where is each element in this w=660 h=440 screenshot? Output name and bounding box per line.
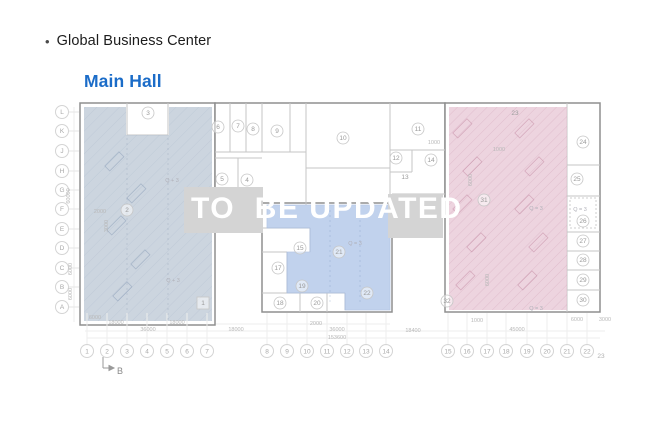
row-axis-label: J xyxy=(60,148,63,155)
col-axis-label: 11 xyxy=(324,348,331,355)
room-number: 18 xyxy=(276,300,284,307)
dimension-label: 6000 xyxy=(89,315,101,321)
room-number: 23 xyxy=(511,110,519,117)
dimension-label: 45000 xyxy=(509,327,524,333)
dimension-label: 1000 xyxy=(428,140,440,146)
col-axis-label: 13 xyxy=(362,348,370,355)
room-number: 10 xyxy=(339,135,347,142)
watermark-text: TO BE UPDATED xyxy=(191,192,463,226)
col-axis-label: 10 xyxy=(303,348,311,355)
col-axis-label: 9 xyxy=(285,348,289,355)
room-number: 4 xyxy=(245,177,249,184)
room-number: 22 xyxy=(363,290,371,297)
room-number: 12 xyxy=(392,155,400,162)
zone-right-hatch xyxy=(449,107,567,310)
dimension-label: 36000 xyxy=(140,327,155,333)
dimension-label: 18400 xyxy=(405,328,420,334)
room-number: 6 xyxy=(216,124,220,131)
room-number: 32 xyxy=(443,298,451,305)
col-axis-label: 4 xyxy=(145,348,149,355)
annotation-label: Q = 3 xyxy=(529,206,543,212)
room-number: 3 xyxy=(146,110,150,117)
section-marker xyxy=(103,357,114,371)
col-axis-label: 21 xyxy=(563,348,571,355)
room-number: 7 xyxy=(236,123,240,130)
annotation-label: Q + 3 xyxy=(166,278,180,284)
room-number: 24 xyxy=(579,139,587,146)
dimension-label: 1000 xyxy=(471,318,483,324)
room-number: 25 xyxy=(573,176,581,183)
dimension-label: 18000 xyxy=(228,327,243,333)
col-axis-label: 1 xyxy=(85,348,89,355)
room-number: 15 xyxy=(296,245,304,252)
col-axis-label: 20 xyxy=(543,348,551,355)
col-axis-label: 5 xyxy=(165,348,169,355)
room-number: 28 xyxy=(579,257,587,264)
row-axis-label: D xyxy=(60,245,65,252)
room-number: 30 xyxy=(579,297,587,304)
section-marker-label: B xyxy=(117,366,123,376)
room-number: 11 xyxy=(415,126,422,133)
room-number: 9 xyxy=(275,128,279,135)
annotation-label: Q = 3 xyxy=(573,207,587,213)
annotation-label: Q + 3 xyxy=(165,178,179,184)
col-axis-label: 14 xyxy=(382,348,390,355)
dimension-label: 6000 xyxy=(571,317,583,323)
col-axis-label: 18 xyxy=(502,348,510,355)
annotation-label: Q = 3 xyxy=(529,306,543,312)
dimension-label: 60000 xyxy=(66,188,72,203)
room-number: 13 xyxy=(401,174,409,181)
room-number: 31 xyxy=(480,197,488,204)
dimension-label: 2000 xyxy=(94,209,106,215)
dimension-label: 18000 xyxy=(108,320,123,326)
col-axis-label: 7 xyxy=(205,348,209,355)
room-number: 26 xyxy=(579,218,587,225)
row-axis-label: A xyxy=(60,304,65,311)
dimension-label: 2000 xyxy=(310,321,322,327)
row-axis-label: C xyxy=(60,265,65,272)
row-axis-label: G xyxy=(59,187,64,194)
row-axis-label: L xyxy=(60,109,64,116)
col-axis-label: 8 xyxy=(265,348,269,355)
dimension-label: 3000 xyxy=(104,220,110,232)
room-number: 19 xyxy=(298,283,306,290)
page: { "header": { "bullet": "•", "title": "G… xyxy=(0,0,660,440)
room-number: 14 xyxy=(427,157,435,164)
room-number: 8 xyxy=(251,126,255,133)
dimension-label: 6000 xyxy=(468,174,474,186)
dimension-label: 36000 xyxy=(329,327,344,333)
col-axis-label: 22 xyxy=(583,348,591,355)
dimension-label: 1000 xyxy=(493,147,505,153)
room-number: 20 xyxy=(313,300,321,307)
col-axis-label: 2 xyxy=(105,348,109,355)
row-axis-label: H xyxy=(60,168,65,175)
annotation-label: Q = 3 xyxy=(348,241,362,247)
col-axis-label: 17 xyxy=(483,348,491,355)
dimension-label: 6000 xyxy=(485,274,491,286)
row-axis-label: F xyxy=(60,206,64,213)
col-axis-label: 6 xyxy=(185,348,189,355)
col-axis-label: 16 xyxy=(463,348,471,355)
dimension-label: 3000 xyxy=(599,317,611,323)
room-number: 2 xyxy=(125,207,129,214)
room-number: 21 xyxy=(335,249,343,256)
row-axis-label: E xyxy=(60,226,65,233)
room-number: 5 xyxy=(220,176,224,183)
col-axis-label: 3 xyxy=(125,348,129,355)
room-number: 17 xyxy=(274,265,282,272)
dimension-label: 6000 xyxy=(68,263,74,275)
col-axis-label-extra: 23 xyxy=(597,353,605,360)
room-number: 29 xyxy=(579,277,587,284)
col-axis-label: 12 xyxy=(343,348,351,355)
col-axis-label: 19 xyxy=(523,348,531,355)
row-axis-label: K xyxy=(60,128,65,135)
row-axis-label: B xyxy=(60,284,64,291)
col-axis-label: 15 xyxy=(444,348,452,355)
room-number: 1 xyxy=(201,300,205,307)
dimension-label: 6000 xyxy=(68,288,74,300)
dimension-label: 18000 xyxy=(169,320,184,326)
room-number: 27 xyxy=(579,238,587,245)
dimension-label: 153600 xyxy=(328,335,346,341)
